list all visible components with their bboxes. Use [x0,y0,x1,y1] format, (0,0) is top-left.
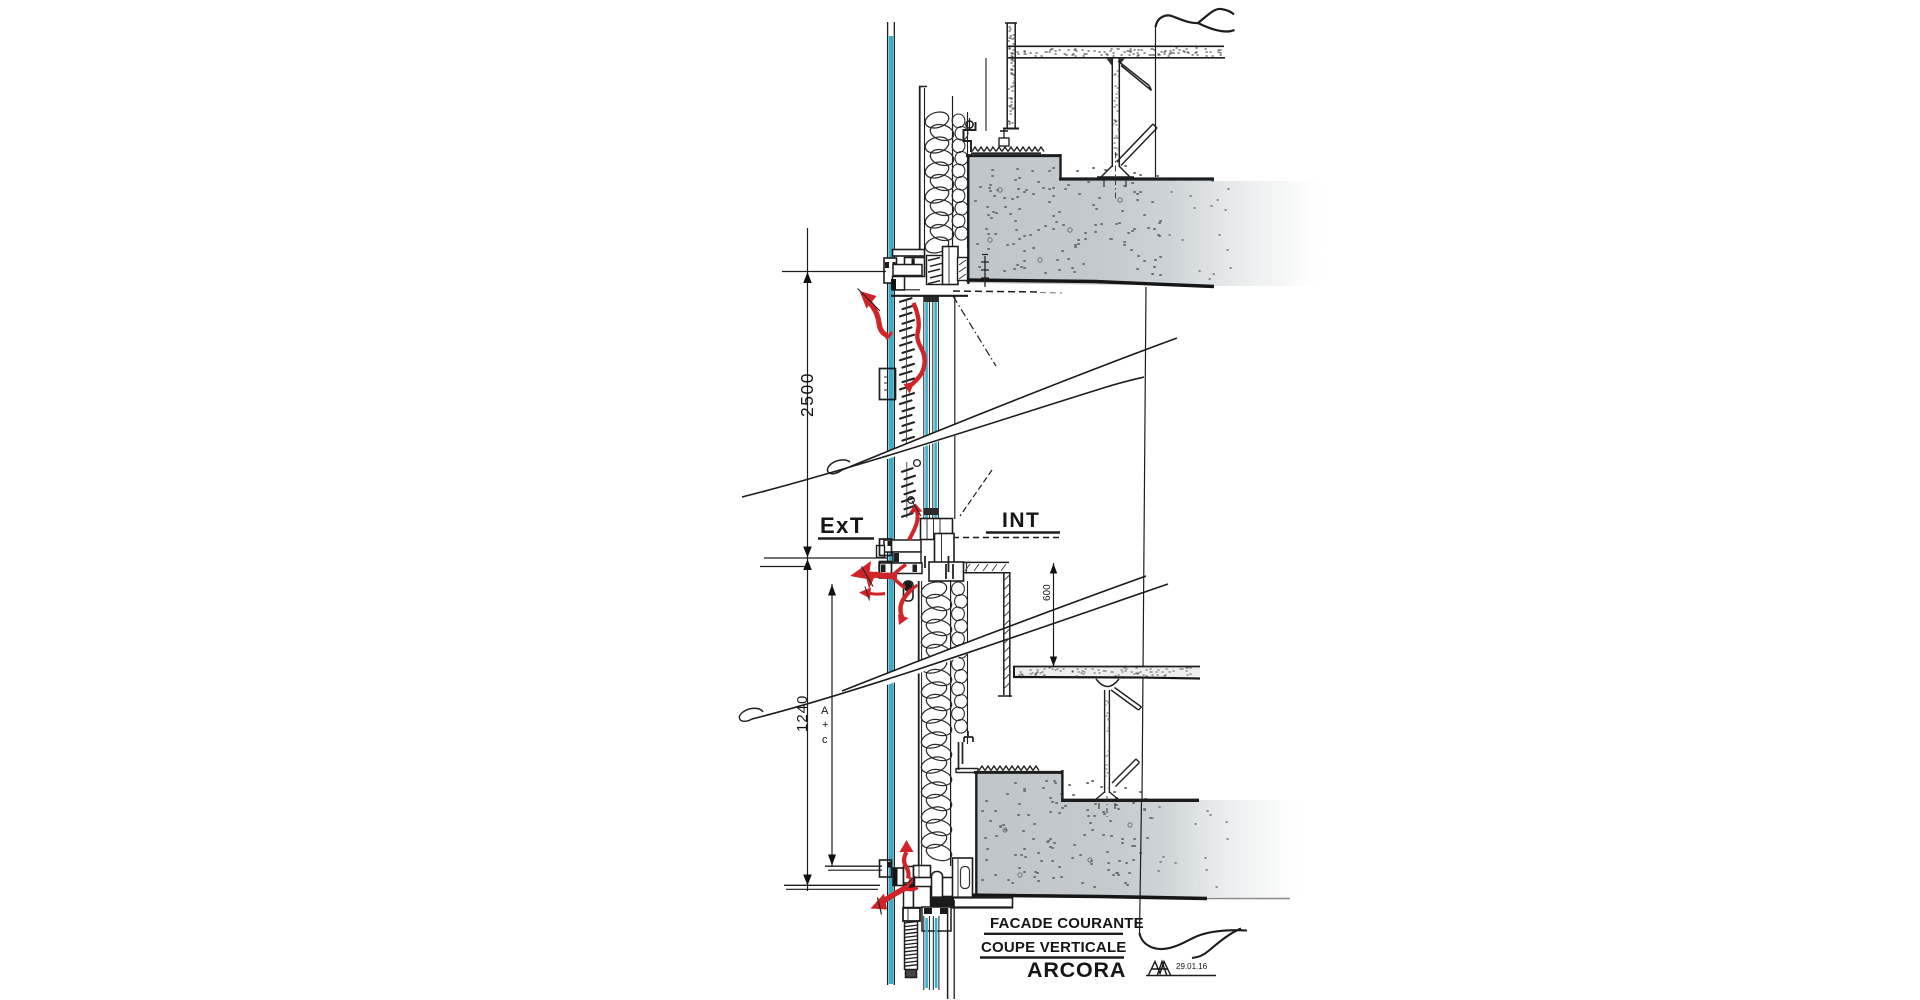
svg-text:1240: 1240 [794,695,811,732]
svg-text:2500: 2500 [797,372,817,417]
svg-text:ARCORA: ARCORA [1027,958,1126,982]
svg-text:29.01.16: 29.01.16 [1176,962,1208,971]
svg-text:+: + [822,719,828,731]
svg-text:600: 600 [1042,584,1053,601]
svg-text:COUPE VERTICALE: COUPE VERTICALE [981,939,1127,956]
svg-text:ExT: ExT [820,513,865,538]
svg-text:FACADE COURANTE: FACADE COURANTE [990,915,1144,932]
svg-text:c: c [822,734,828,746]
svg-text:INT: INT [1002,509,1040,532]
svg-text:A: A [821,705,829,717]
